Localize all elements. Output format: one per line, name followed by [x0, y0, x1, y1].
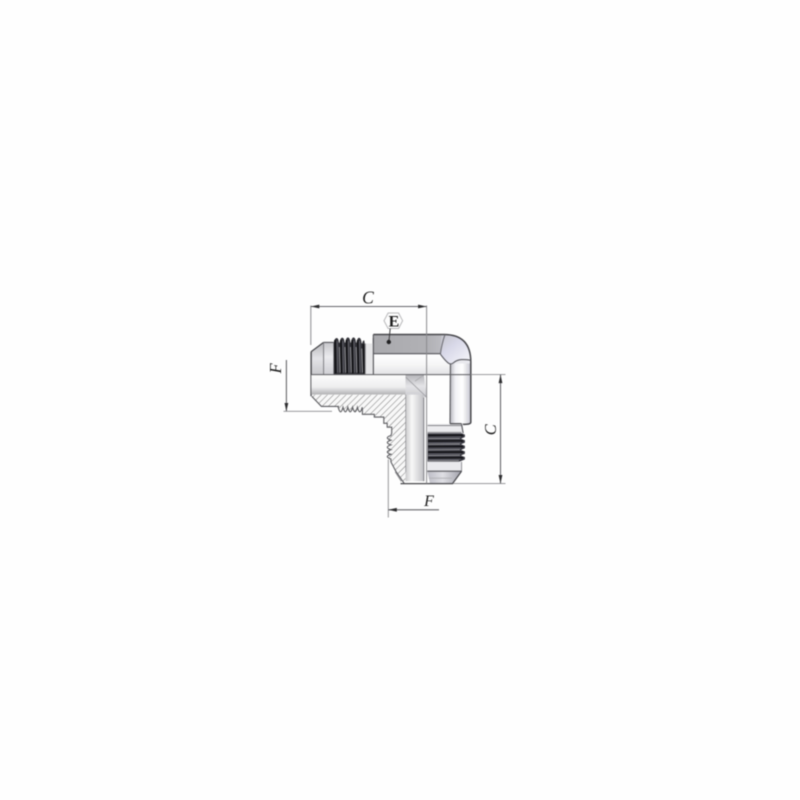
svg-text:E: E [389, 314, 400, 331]
svg-text:F: F [266, 362, 285, 374]
svg-text:F: F [423, 493, 434, 510]
svg-text:C: C [481, 423, 500, 435]
svg-text:C: C [362, 288, 374, 308]
